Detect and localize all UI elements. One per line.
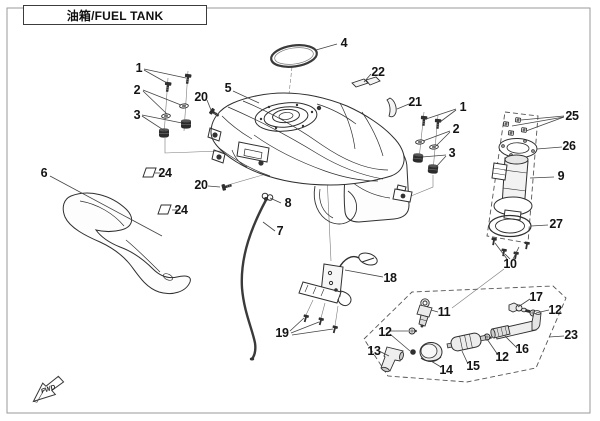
hose-clip-drawing <box>262 193 273 200</box>
fuel-hose-drawing <box>242 197 268 361</box>
filler-oring-drawing <box>270 42 318 69</box>
fuel-pump-assembly <box>487 112 538 260</box>
fuel-tank-drawing <box>208 93 412 224</box>
nut-12-drawing <box>410 349 416 355</box>
fwd-arrow: FWD <box>28 375 67 403</box>
cap-14-drawing <box>420 343 442 362</box>
elbow-13-drawing <box>381 347 404 373</box>
valve-11-drawing <box>417 299 432 328</box>
page-title: 油箱/FUEL TANK <box>67 7 164 24</box>
pad-24-icon <box>143 168 156 177</box>
diagram-canvas: FWD <box>0 0 600 421</box>
pad-24-icon <box>158 205 171 214</box>
fitting-17-drawing <box>509 303 530 312</box>
fuel-level-sensor-drawing <box>299 251 379 306</box>
pipe-16-drawing <box>490 310 541 339</box>
title-box: 油箱/FUEL TANK <box>23 5 207 25</box>
bracket-22-drawing <box>352 77 380 87</box>
filter-15-drawing <box>446 331 487 353</box>
bracket-21-drawing <box>387 98 396 117</box>
fuel-tank-parts-diagram: FWD 油箱/FUEL TANK 12320542221123252692710… <box>0 0 600 421</box>
petcock-detail-group <box>364 286 566 382</box>
heat-shield-drawing <box>63 193 190 293</box>
leader-lines <box>50 44 564 367</box>
